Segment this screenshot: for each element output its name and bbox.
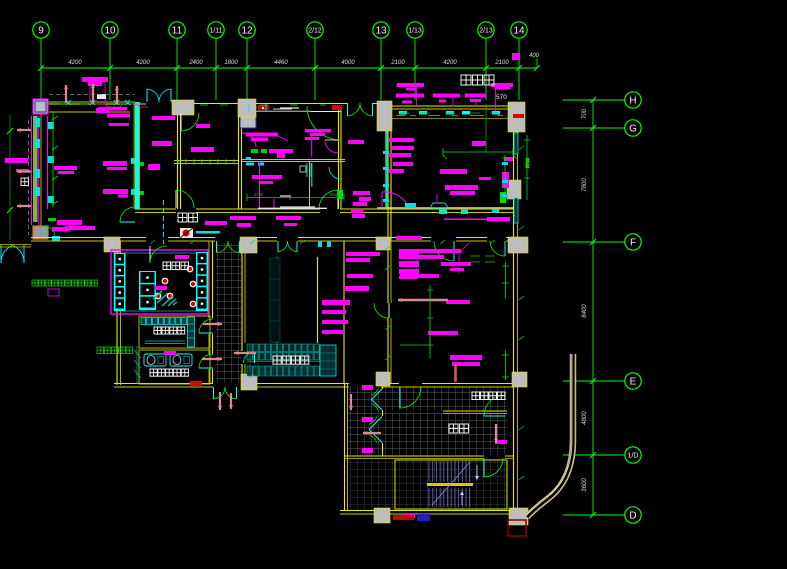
svg-text:4000: 4000 xyxy=(341,60,355,66)
svg-text:7800: 7800 xyxy=(582,178,588,192)
svg-text:1/11: 1/11 xyxy=(209,28,222,35)
svg-text:9: 9 xyxy=(38,26,44,37)
svg-text:5700: 5700 xyxy=(525,157,530,168)
svg-text:14: 14 xyxy=(513,26,525,37)
svg-text:11: 11 xyxy=(172,26,183,37)
svg-text:4460: 4460 xyxy=(274,60,288,66)
svg-text:D: D xyxy=(629,511,636,522)
svg-text:12: 12 xyxy=(241,26,253,37)
svg-text:2/13: 2/13 xyxy=(479,28,493,35)
svg-text:700: 700 xyxy=(582,108,588,119)
svg-text:H: H xyxy=(629,96,636,107)
svg-text:2/12: 2/12 xyxy=(308,28,322,35)
svg-text:2100: 2100 xyxy=(494,60,509,66)
svg-text:1800: 1800 xyxy=(224,60,238,66)
svg-text:3600: 3600 xyxy=(582,478,588,492)
svg-text:F: F xyxy=(630,238,636,249)
svg-text:1/D: 1/D xyxy=(628,453,639,460)
svg-text:400: 400 xyxy=(529,53,540,59)
svg-text:2400: 2400 xyxy=(188,60,203,66)
svg-text:1750: 1750 xyxy=(254,192,264,197)
svg-text:E: E xyxy=(630,377,637,388)
svg-text:13: 13 xyxy=(375,26,387,37)
svg-text:1/13: 1/13 xyxy=(408,28,422,35)
svg-text:10: 10 xyxy=(104,26,116,37)
svg-text:G: G xyxy=(629,124,637,135)
svg-text:2100: 2100 xyxy=(390,60,405,66)
svg-text:8400: 8400 xyxy=(582,304,588,318)
svg-text:4200: 4200 xyxy=(68,60,82,66)
svg-text:4800: 4800 xyxy=(582,411,588,425)
svg-text:4200: 4200 xyxy=(443,60,457,66)
svg-text:4200: 4200 xyxy=(136,60,150,66)
svg-text:570: 570 xyxy=(496,94,507,101)
